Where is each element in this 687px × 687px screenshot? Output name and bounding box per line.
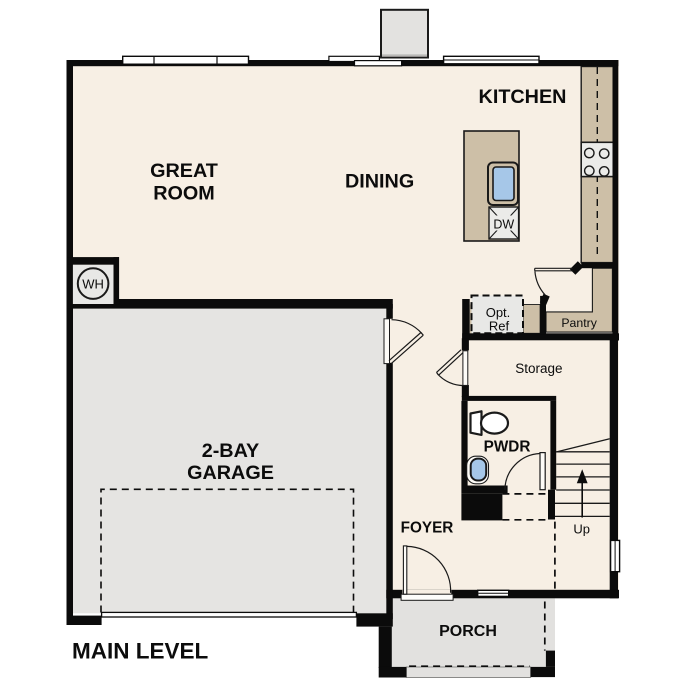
svg-text:KITCHEN: KITCHEN [479,86,567,108]
svg-text:PWDR: PWDR [484,438,531,455]
svg-text:MAIN LEVEL: MAIN LEVEL [72,638,209,663]
svg-text:GREAT: GREAT [150,160,218,182]
svg-text:2-BAY: 2-BAY [202,440,260,462]
svg-text:Ref: Ref [489,319,510,334]
svg-text:ROOM: ROOM [153,182,215,204]
svg-text:FOYER: FOYER [401,519,454,536]
svg-text:PORCH: PORCH [439,623,497,640]
svg-text:Up: Up [573,522,590,537]
svg-text:WH: WH [82,276,104,291]
svg-text:GARAGE: GARAGE [187,462,274,484]
svg-text:DINING: DINING [345,171,414,193]
svg-text:DW: DW [493,218,514,232]
svg-text:Pantry: Pantry [561,316,597,330]
svg-text:Storage: Storage [515,361,562,376]
